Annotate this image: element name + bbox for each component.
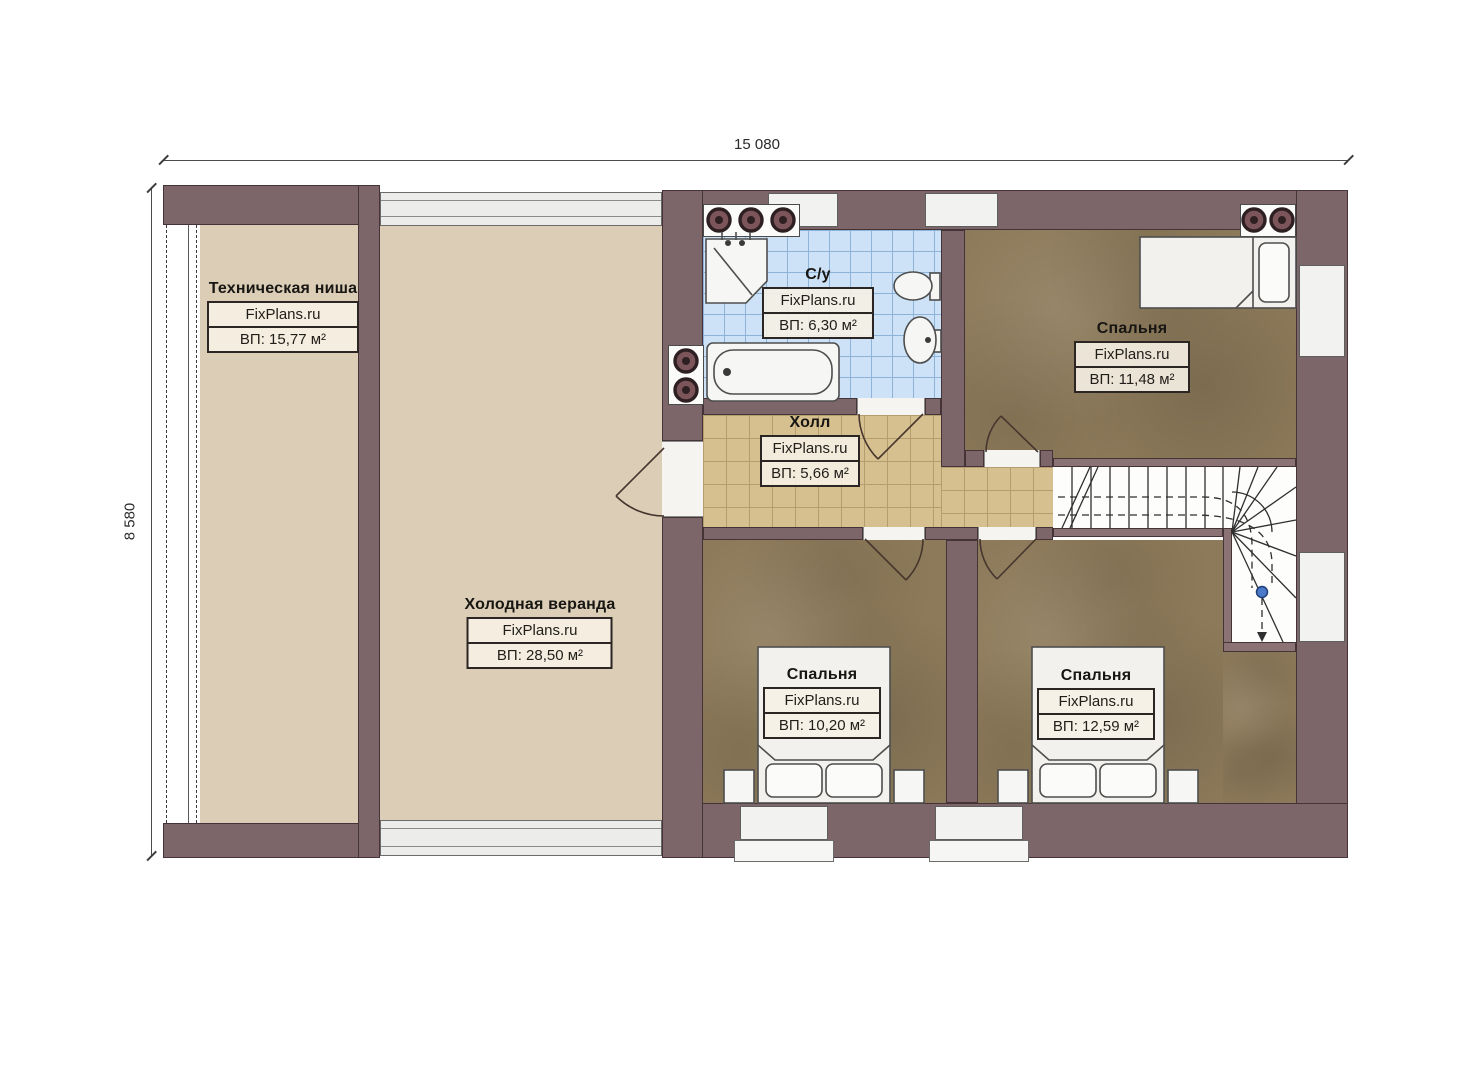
bathroom-bedroom-wall [941, 230, 965, 467]
room-name: Спальня [763, 666, 881, 684]
winder-left-wall [1223, 528, 1232, 652]
niche-veranda-divider-wall [358, 185, 380, 858]
room-label-bedroom-top: Спальня FixPlans.ru ВП: 11,48 м² [1074, 320, 1190, 393]
veranda-bottom-glazing [380, 820, 662, 856]
room-area: ВП: 12,59 м² [1039, 713, 1153, 738]
bathroom-bottom-wall-right [925, 398, 941, 415]
room-label-veranda: Холодная веранда FixPlans.ru ВП: 28,50 м… [465, 596, 616, 669]
window-east-2 [1299, 552, 1345, 642]
floor-plan: 15 080 8 580 [0, 0, 1473, 1080]
room-name: С/у [762, 266, 874, 284]
bedroom-top-door-opening [984, 450, 1040, 467]
room-area: ВП: 11,48 м² [1076, 366, 1188, 391]
room-name: Спальня [1074, 320, 1190, 338]
bedrooms-divider-wall [946, 540, 978, 803]
window-top-2 [925, 193, 998, 227]
bedroom-bottom-right-door-opening [978, 527, 1036, 540]
house-west-wall-lower [662, 517, 703, 858]
dimension-line-left [151, 188, 152, 856]
watermark: FixPlans.ru [1039, 690, 1153, 713]
room-label-bedroom-bottom-right: Спальня FixPlans.ru ВП: 12,59 м² [1037, 667, 1155, 740]
room-area: ВП: 6,30 м² [764, 312, 872, 337]
dimension-height-label: 8 580 [121, 503, 138, 541]
watermark: FixPlans.ru [469, 619, 611, 642]
dimension-line-top [163, 160, 1348, 161]
window-bottom-2 [935, 806, 1023, 840]
room-area: ВП: 28,50 м² [469, 642, 611, 667]
hall-bottom-wall-left [703, 527, 863, 540]
hall-bottom-wall-right [1036, 527, 1053, 540]
window-east-1 [1299, 265, 1345, 357]
dimension-width-label: 15 080 [734, 136, 780, 153]
hall-bottom-wall-mid [925, 527, 978, 540]
staircase-winder-area [1223, 467, 1296, 647]
bathroom-bottom-wall-left [703, 398, 857, 415]
niche-top-wall [163, 185, 380, 225]
bathtub-side-vent-box [668, 345, 704, 405]
room-area: ВП: 10,20 м² [765, 712, 879, 737]
watermark: FixPlans.ru [1076, 343, 1188, 366]
watermark: FixPlans.ru [765, 689, 879, 712]
niche-bottom-wall [163, 823, 380, 858]
room-area: ВП: 15,77 м² [209, 326, 357, 351]
bedroom-top-wall-left [965, 450, 984, 467]
watermark: FixPlans.ru [762, 437, 858, 460]
room-name: Холл [760, 414, 860, 432]
bedroom-top-wall-right [1040, 450, 1053, 467]
roof-overhang-dashed-line [196, 225, 197, 823]
room-label-bedroom-bottom-left: Спальня FixPlans.ru ВП: 10,20 м² [763, 666, 881, 739]
room-label-hall: Холл FixPlans.ru ВП: 5,66 м² [760, 414, 860, 487]
staircase-top-wall [1053, 458, 1296, 467]
bedroom-bottom-left-door-opening [863, 527, 925, 540]
bedroom-top-vent-box [1240, 204, 1296, 237]
bedroom-bottom-right-floor-ext [1223, 652, 1296, 803]
window-bottom-2-sill [929, 840, 1029, 862]
window-bottom-1-sill [734, 840, 834, 862]
staircase-bottom-wall [1053, 528, 1223, 537]
room-area: ВП: 5,66 м² [762, 460, 858, 485]
room-label-tech-niche: Техническая ниша FixPlans.ru ВП: 15,77 м… [207, 280, 359, 353]
veranda-floor [380, 226, 662, 820]
veranda-top-glazing [380, 192, 662, 226]
staircase-run-area [1053, 467, 1223, 528]
niche-edge-line [188, 225, 189, 823]
bathroom-vent-box [703, 204, 800, 237]
room-label-bathroom: С/у FixPlans.ru ВП: 6,30 м² [762, 266, 874, 339]
room-name: Спальня [1037, 667, 1155, 685]
roof-overhang-dashed-line [166, 225, 167, 823]
room-name: Холодная веранда [465, 596, 616, 614]
room-name: Техническая ниша [207, 280, 359, 298]
watermark: FixPlans.ru [209, 303, 357, 326]
bathroom-door-opening [857, 398, 925, 415]
winder-bottom-wall [1223, 642, 1296, 652]
tech-niche-open-strip [163, 225, 200, 823]
watermark: FixPlans.ru [764, 289, 872, 312]
hall-corridor-floor [941, 467, 1053, 527]
veranda-door-opening [662, 441, 703, 517]
window-bottom-1 [740, 806, 828, 840]
